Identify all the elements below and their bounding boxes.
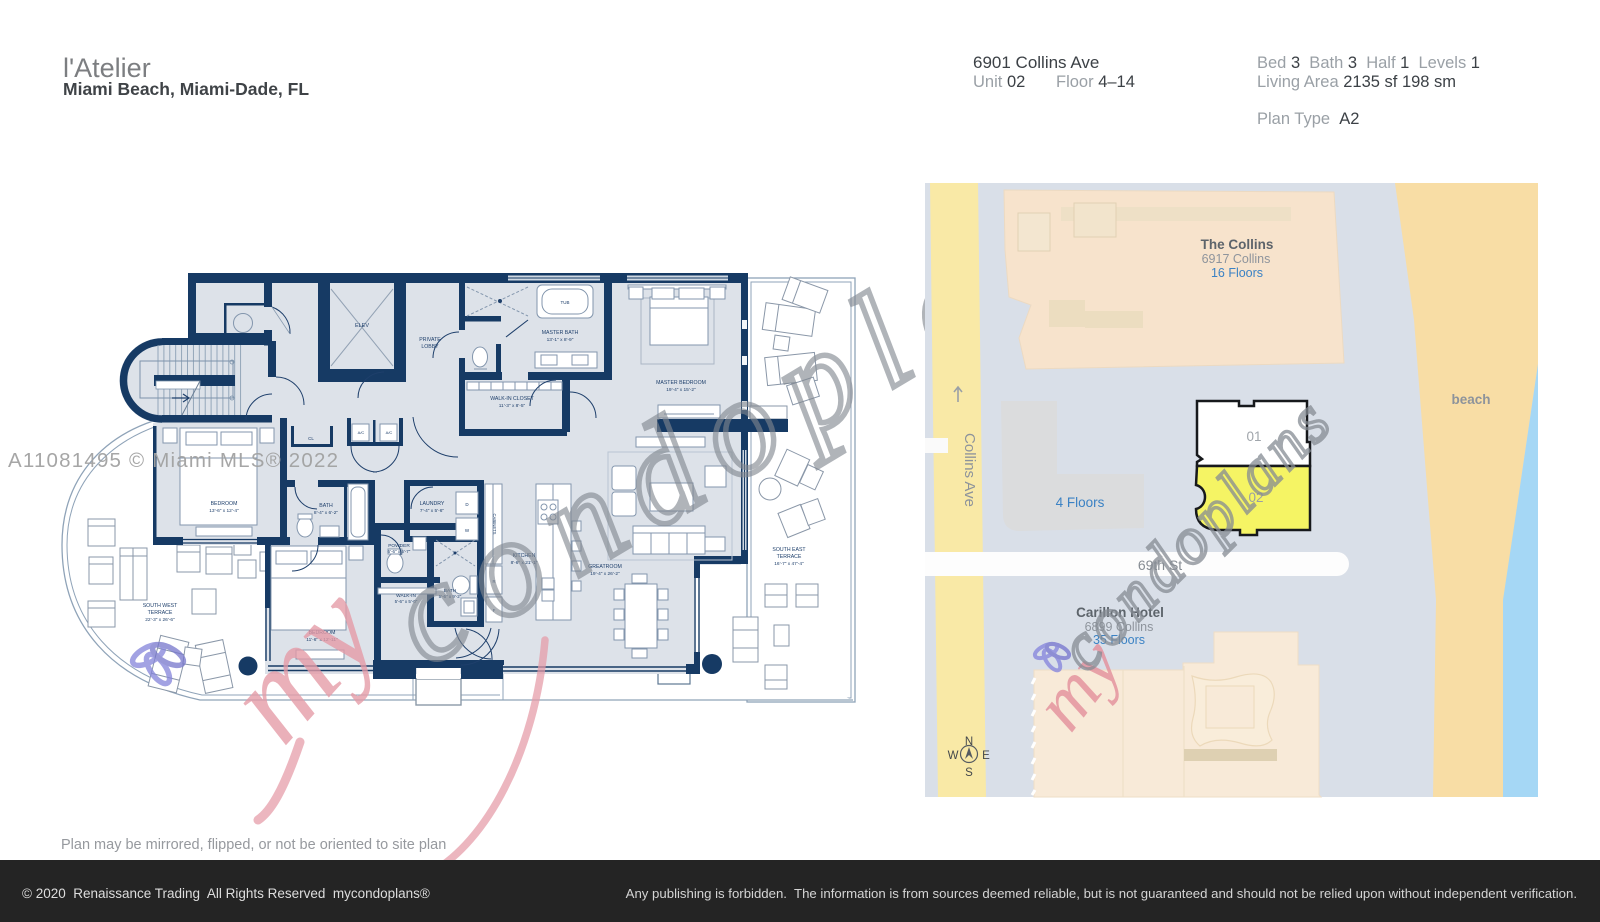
svg-text:ELEV: ELEV (355, 323, 369, 329)
svg-text:13'-6" x 12'-4": 13'-6" x 12'-4" (209, 508, 239, 514)
svg-text:W: W (948, 750, 959, 762)
svg-text:WALK-IN CLOSET: WALK-IN CLOSET (490, 396, 534, 402)
svg-text:SOUTH EAST: SOUTH EAST (772, 547, 806, 553)
svg-text:PRIVATE: PRIVATE (419, 337, 441, 343)
svg-text:The Collins: The Collins (1201, 237, 1274, 252)
svg-text:LAUNDRY: LAUNDRY (420, 501, 445, 507)
svg-text:MASTER BATH: MASTER BATH (542, 330, 579, 336)
svg-text:N: N (965, 736, 973, 748)
svg-text:A11081495 © Miami MLS® 2022: A11081495 © Miami MLS® 2022 (8, 449, 339, 472)
svg-text:E: E (982, 750, 990, 762)
svg-text:16'-7" x 47'-4": 16'-7" x 47'-4" (774, 561, 804, 567)
svg-text:8'-4" x 6'-2": 8'-4" x 6'-2" (314, 510, 338, 516)
svg-text:16 Floors: 16 Floors (1211, 266, 1263, 280)
svg-text:Plan may be mirrored, flipped,: Plan may be mirrored, flipped, or not be… (61, 837, 446, 853)
svg-text:Miami Beach, Miami-Dade, FL: Miami Beach, Miami-Dade, FL (63, 79, 309, 99)
svg-text:SOUTH WEST: SOUTH WEST (143, 603, 178, 609)
svg-text:4 Floors: 4 Floors (1056, 495, 1105, 510)
svg-text:TERRACE: TERRACE (777, 554, 802, 560)
svg-text:22'-3" x 26'-6": 22'-3" x 26'-6" (145, 617, 175, 623)
svg-text:© 2020 Renaissance Trading A: © 2020 Renaissance Trading All Rights Re… (22, 886, 430, 901)
svg-text:beach: beach (1451, 392, 1490, 407)
svg-text:BEDROOM: BEDROOM (211, 501, 238, 507)
svg-text:S: S (965, 767, 973, 779)
svg-text:7'-4" x 5'-6": 7'-4" x 5'-6" (420, 508, 444, 514)
svg-text:A/C: A/C (386, 430, 393, 435)
svg-text:LOBBY: LOBBY (421, 344, 439, 350)
svg-text:TUB: TUB (561, 300, 570, 305)
svg-text:TERRACE: TERRACE (148, 610, 173, 616)
svg-text:Floor 4–14: Floor 4–14 (1056, 73, 1135, 91)
svg-text:BATH: BATH (319, 503, 333, 509)
svg-text:CL: CL (308, 436, 314, 441)
svg-text:Unit 02: Unit 02 (973, 73, 1025, 91)
svg-text:A/C: A/C (358, 430, 365, 435)
svg-text:Living Area 2135 sf 198 sm: Living Area 2135 sf 198 sm (1257, 73, 1456, 91)
svg-text:13'-1" x 8'-9": 13'-1" x 8'-9" (547, 337, 574, 343)
svg-text:6917 Collins: 6917 Collins (1202, 252, 1271, 266)
svg-text:Plan Type A2: Plan Type A2 (1257, 110, 1359, 128)
svg-text:Bed 3 Bath 3 Half 1 Levels: Bed 3 Bath 3 Half 1 Levels 1 (1257, 54, 1480, 72)
svg-text:6901 Collins Ave: 6901 Collins Ave (973, 53, 1099, 72)
svg-text:11'-3" x 8'-5": 11'-3" x 8'-5" (499, 403, 526, 409)
svg-text:Any publishing is forbidden.: Any publishing is forbidden. The informa… (626, 886, 1577, 901)
svg-text:Collins Ave: Collins Ave (961, 433, 978, 507)
